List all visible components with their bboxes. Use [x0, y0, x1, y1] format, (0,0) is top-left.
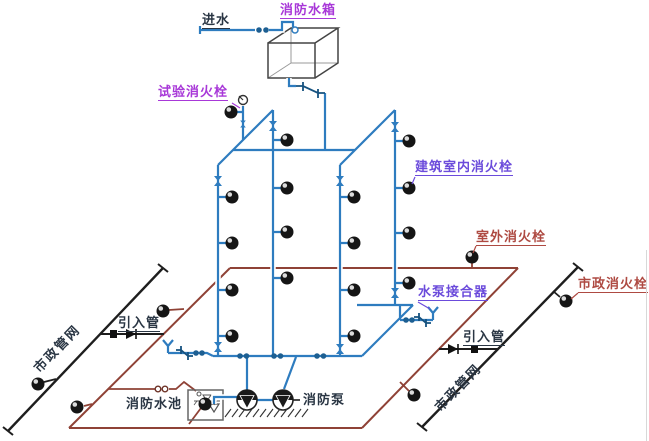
label-water-inlet: 进水 [202, 12, 230, 29]
municipal-network-lines [3, 263, 583, 435]
float-valve-icon [197, 392, 201, 396]
label-inlet-pipe-left: 引入管 [118, 315, 160, 332]
diagram-linework [0, 0, 649, 441]
pool-fill-valve [155, 386, 168, 392]
label-fire-pump: 消防泵 [303, 392, 345, 407]
flange-valve-pairs [193, 27, 415, 359]
fire-water-tank-box [268, 28, 338, 78]
label-outdoor-hydrant: 室外消火栓 [476, 229, 546, 246]
ground-hatching [225, 409, 308, 417]
label-test-fire-hydrant: 试验消火栓 [158, 84, 228, 101]
fire-water-system-diagram: 进水 消防水箱 试验消火栓 建筑室内消火栓 室外消火栓 水泵接合器 市政消火栓 … [0, 0, 649, 441]
gate-valve-icons [214, 121, 399, 355]
label-indoor-hydrant: 建筑室内消火栓 [415, 159, 513, 176]
label-fire-water-tank: 消防水箱 [280, 2, 336, 19]
tank-float-valve-icon [292, 27, 298, 33]
label-inlet-pipe-right: 引入管 [463, 329, 505, 346]
pressure-gauge-icon [239, 96, 248, 105]
municipal-hydrant-icon-left [32, 378, 45, 391]
test-fire-hydrant-icon [225, 106, 238, 119]
municipal-hydrant-icon-right [560, 295, 573, 308]
label-fire-water-pool: 消防水池 [126, 396, 182, 411]
label-municipal-hydrant: 市政消火栓 [578, 276, 648, 293]
scan-edge-artifact [646, 250, 647, 441]
label-pump-adapter: 水泵接合器 [418, 284, 488, 301]
